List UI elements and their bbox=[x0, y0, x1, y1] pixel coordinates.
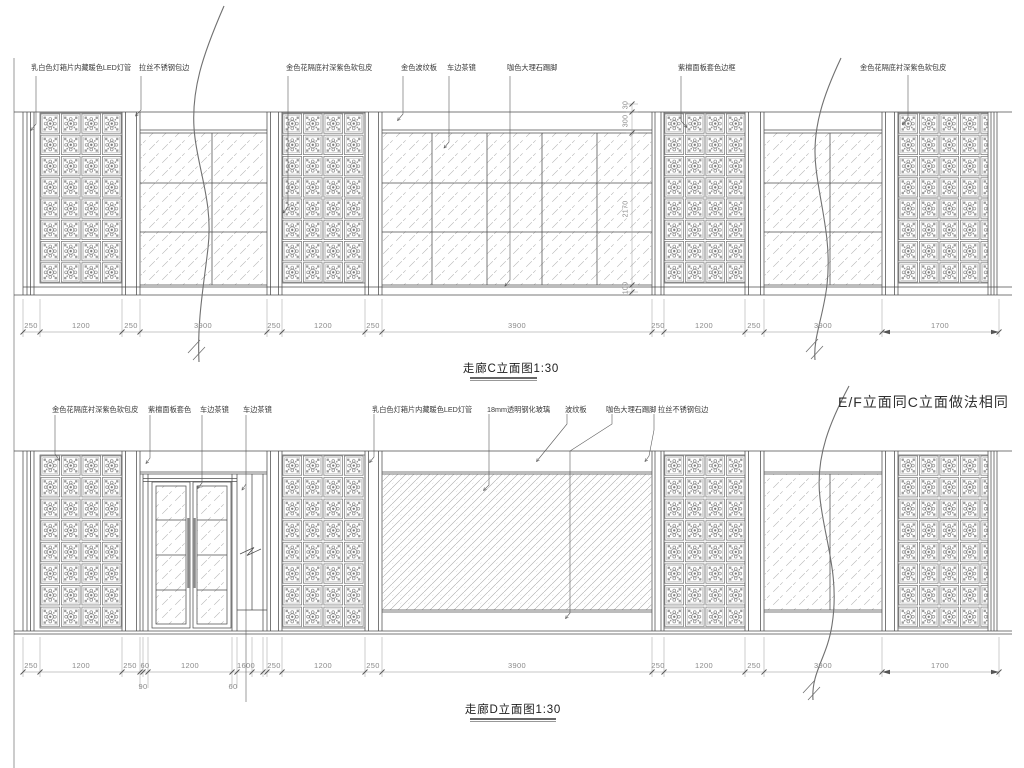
dim-value-vertical: 100 bbox=[623, 282, 630, 295]
end-strip-c bbox=[23, 112, 34, 295]
sidelight bbox=[237, 474, 267, 631]
dim-value: 250 bbox=[651, 322, 664, 330]
dim-value: 3900 bbox=[814, 662, 832, 670]
tempered-glass-panel bbox=[382, 474, 652, 610]
dim-value: 250 bbox=[123, 662, 136, 670]
door-handle bbox=[187, 518, 189, 588]
mirror-panel bbox=[382, 133, 652, 285]
dim-value-vertical: 300 bbox=[623, 115, 630, 128]
mirror-mark bbox=[240, 548, 261, 556]
dim-value: 1200 bbox=[695, 322, 713, 330]
callout-stainless-edge: 拉丝不锈钢包边 bbox=[139, 63, 189, 72]
dim-value: 250 bbox=[747, 322, 760, 330]
door-handle bbox=[194, 518, 196, 588]
callout-sandalwood-panel: 紫檀面板套色 bbox=[148, 405, 191, 414]
dim-value: 1200 bbox=[314, 662, 332, 670]
dim-value: 1200 bbox=[181, 662, 199, 670]
callout-lightbox-led: 乳白色灯箱片内藏暖色LED灯管 bbox=[372, 405, 472, 414]
dim-value: 250 bbox=[747, 662, 760, 670]
elevation-d-linework bbox=[14, 451, 1012, 634]
dim-value: 1700 bbox=[931, 322, 949, 330]
callout-corrugated: 波纹板 bbox=[565, 405, 587, 414]
drawing-sheet: 乳白色灯箱片内藏暖色LED灯管 拉丝不锈钢包边 金色花隔底衬深紫色软包皮 金色波… bbox=[0, 0, 1024, 768]
callout-lightbox-led: 乳白色灯箱片内藏暖色LED灯管 bbox=[31, 63, 131, 72]
dim-value: 3900 bbox=[508, 322, 526, 330]
callout-marble-skirting: 咖色大理石踢脚 bbox=[606, 405, 656, 414]
lattice-panel bbox=[898, 113, 988, 283]
ef-elevation-note: E/F立面同C立面做法相同 bbox=[838, 394, 1009, 410]
dim-value-sub: 60 bbox=[229, 683, 238, 691]
callout-beveled-mirror: 车边茶镜 bbox=[200, 405, 229, 414]
lattice-panel bbox=[40, 113, 122, 283]
dim-value: 3900 bbox=[194, 322, 212, 330]
dim-value: 250 bbox=[651, 662, 664, 670]
mirror-panel bbox=[764, 474, 882, 610]
dim-value: 250 bbox=[267, 662, 280, 670]
dim-value: 250 bbox=[24, 322, 37, 330]
lattice-panel bbox=[282, 113, 365, 283]
lattice-panel bbox=[664, 455, 745, 628]
lattice-panel bbox=[664, 113, 745, 283]
dim-value: 1700 bbox=[931, 662, 949, 670]
callout-tempered-glass: 18mm透明钢化玻璃 bbox=[487, 405, 550, 414]
dim-value: 3900 bbox=[814, 322, 832, 330]
dim-value: 1600 bbox=[237, 662, 255, 670]
dim-value: 3900 bbox=[508, 662, 526, 670]
elevation-d-title: 走廊D立面图1:30 bbox=[465, 704, 561, 717]
lattice-panel bbox=[282, 455, 365, 628]
end-strip-d bbox=[23, 451, 34, 631]
dim-value: 250 bbox=[366, 322, 379, 330]
callout-stainless-edge: 拉丝不锈钢包边 bbox=[658, 405, 708, 414]
mirror-panel bbox=[140, 133, 267, 285]
callout-gold-lattice: 金色花隔底衬深紫色软包皮 bbox=[286, 63, 372, 72]
dim-value-vertical: 2170 bbox=[623, 201, 630, 218]
dim-value: 1200 bbox=[72, 662, 90, 670]
cad-linework bbox=[0, 0, 1024, 768]
elevation-c-title: 走廊C立面图1:30 bbox=[463, 363, 559, 376]
dim-value: 250 bbox=[366, 662, 379, 670]
callout-gold-lattice: 金色花隔底衬深紫色软包皮 bbox=[860, 63, 946, 72]
dim-value-vertical: 30 bbox=[623, 101, 630, 109]
callout-sandalwood-frame: 紫檀面板套色边框 bbox=[678, 63, 736, 72]
dim-value: 250 bbox=[24, 662, 37, 670]
callout-gold-lattice: 金色花隔底衬深紫色软包皮 bbox=[52, 405, 138, 414]
dim-value: 1200 bbox=[695, 662, 713, 670]
dim-value: 250 bbox=[267, 322, 280, 330]
lattice-panel bbox=[898, 455, 988, 628]
callout-marble-skirting: 咖色大理石踢脚 bbox=[507, 63, 557, 72]
dim-value-sub: 90 bbox=[139, 683, 148, 691]
callout-gold-corrugated: 金色波纹板 bbox=[401, 63, 437, 72]
lattice-panel bbox=[40, 455, 122, 628]
dim-value: 60 bbox=[141, 662, 150, 670]
dim-value: 1200 bbox=[72, 322, 90, 330]
callout-beveled-mirror: 车边茶镜 bbox=[447, 63, 476, 72]
double-glass-door bbox=[140, 472, 267, 631]
dim-value: 1200 bbox=[314, 322, 332, 330]
elevation-c-linework bbox=[14, 112, 1012, 295]
callout-beveled-mirror: 车边茶镜 bbox=[243, 405, 272, 414]
dim-value: 250 bbox=[124, 322, 137, 330]
